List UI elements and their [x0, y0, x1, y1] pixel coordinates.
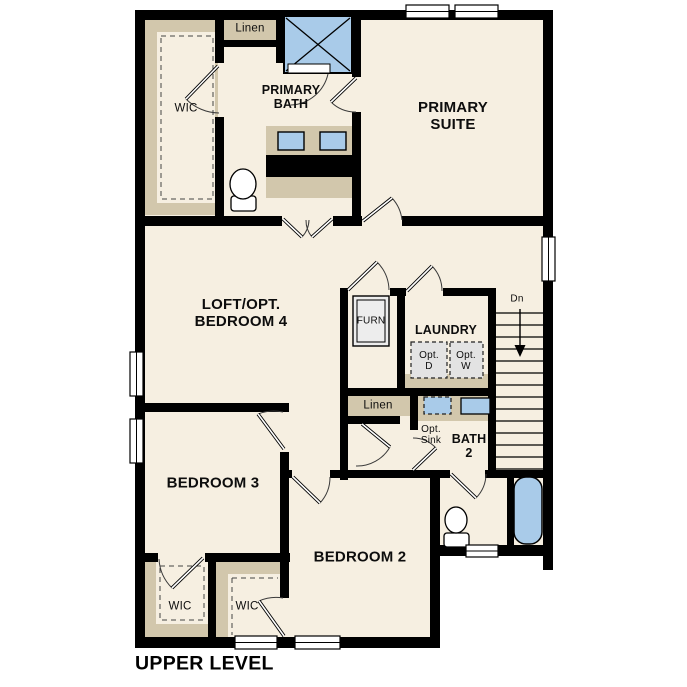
- bedroom3-label: BEDROOM 3: [167, 476, 260, 493]
- stairs-down-label: Dn: [510, 293, 523, 304]
- linen-hall-label: Linen: [363, 400, 392, 413]
- wic-primary-label: WIC: [175, 103, 198, 116]
- furnace-label: FURN: [357, 315, 386, 326]
- floor-plan-drawing: [0, 0, 687, 687]
- floor-plan: Linen WIC PRIMARY BATH PRIMARY SUITE LOF…: [0, 0, 687, 687]
- wic-bedroom3-label: WIC: [169, 601, 192, 614]
- toilet-primary: [230, 169, 256, 211]
- bedroom2-label: BEDROOM 2: [314, 550, 407, 567]
- toilet-bath2: [444, 507, 469, 547]
- plan-title: UPPER LEVEL: [135, 653, 274, 676]
- laundry-label: LAUNDRY: [415, 323, 477, 337]
- bathtub: [514, 477, 542, 544]
- opt-sink-label: Opt. Sink: [421, 424, 441, 446]
- opt-washer-label: Opt. W: [456, 350, 476, 372]
- shower: [284, 16, 352, 73]
- primary-bath-label: PRIMARY BATH: [262, 83, 321, 111]
- bath2-label: BATH 2: [452, 432, 487, 460]
- primary-suite-label: PRIMARY SUITE: [418, 100, 488, 134]
- optional-sink-fixture: [424, 397, 451, 414]
- wic-bedroom2-label: WIC: [236, 601, 259, 614]
- loft-label: LOFT/OPT. BEDROOM 4: [195, 297, 288, 331]
- opt-dryer-label: Opt. D: [419, 350, 439, 372]
- linen-top-label: Linen: [235, 23, 264, 36]
